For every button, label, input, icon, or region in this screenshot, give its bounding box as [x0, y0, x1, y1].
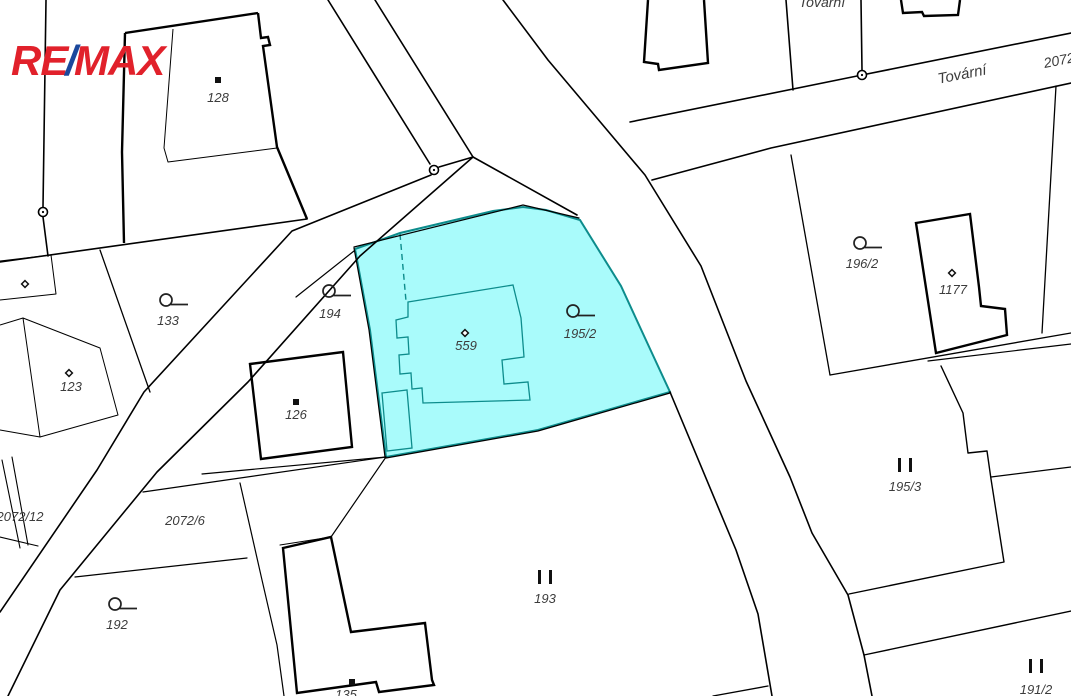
- map-symbol-double-bar: [1029, 659, 1043, 673]
- highlighted-parcel-group[interactable]: [355, 207, 670, 457]
- road-nw-edge2: [375, 0, 473, 157]
- boundary-above-tovarni: [786, 0, 793, 90]
- boundary-corridor: [240, 483, 284, 696]
- boundary-left-pair-a: [2, 460, 20, 548]
- parcel-topleft-quad: [0, 255, 56, 300]
- boundary-194-126: [296, 251, 354, 297]
- parcel-label-193: 193: [534, 591, 556, 606]
- boundary-123-bottom: [0, 430, 40, 437]
- highlighted-parcel-195-2[interactable]: [355, 207, 670, 457]
- building-135: [283, 537, 434, 693]
- map-canvas: 128133123194126559195/2196/21177195/3193…: [0, 0, 1071, 696]
- parcel-label-126: 126: [285, 407, 307, 422]
- remax-logo: RE/MAX: [11, 40, 164, 82]
- junction-point: [39, 208, 48, 217]
- road-tovarni-top: [630, 33, 1071, 122]
- parcel-123-edge: [0, 318, 23, 325]
- map-symbol-circle-tail: [854, 237, 882, 249]
- road-tovarni-bottom: [652, 83, 1071, 180]
- boundary-196-2-bottom-a: [830, 333, 1071, 375]
- parcel-label-128: 128: [207, 90, 229, 105]
- map-symbol-double-bar: [538, 570, 552, 584]
- cadastral-map-view: 128133123194126559195/2196/21177195/3193…: [0, 0, 1071, 696]
- parcel-label-Tov-rn-: Tovární: [936, 61, 990, 87]
- map-symbol-square: [215, 77, 221, 83]
- parcel-label-2072-12: 2072/12: [0, 509, 44, 524]
- boundary-196-2-bottom-b: [928, 344, 1071, 361]
- boundary-126-bottom: [202, 457, 386, 474]
- map-symbol-diamond: [66, 370, 73, 377]
- boundary-195-3: [849, 366, 1004, 594]
- boundary-191-2: [864, 611, 1071, 655]
- map-symbol-square: [293, 399, 299, 405]
- thin-parcel-lines: [0, 29, 277, 437]
- map-symbol-circle-tail: [160, 294, 188, 306]
- map-symbol-diamond: [22, 281, 29, 288]
- parcel-123-outline: [23, 318, 118, 437]
- road-nw-edge1: [328, 0, 430, 164]
- boundary-123-133: [100, 250, 150, 392]
- boundary-196-2-right: [1042, 86, 1056, 333]
- junction-point-layer: [39, 71, 867, 217]
- parcel-label-195-3: 195/3: [889, 479, 922, 494]
- remax-logo-max: MAX: [74, 37, 164, 84]
- building-top-b: [901, 0, 960, 16]
- map-symbol-double-bar: [898, 458, 912, 472]
- parcel-label-191-2: 191/2: [1020, 682, 1053, 696]
- parcel-label-133: 133: [157, 313, 179, 328]
- parcel-label-192: 192: [106, 617, 128, 632]
- boundary-cyan-to-135: [331, 457, 386, 537]
- remax-logo-re: RE: [11, 37, 67, 84]
- boundary-2072-6-top: [143, 457, 386, 492]
- parcel-label-2072-6: 2072/6: [164, 513, 206, 528]
- boundary-192-top: [75, 558, 247, 577]
- map-symbol-square: [349, 679, 355, 685]
- map-symbol-diamond: [949, 270, 956, 277]
- parcel-label-Tov-rn-: Tovární: [799, 0, 847, 10]
- map-symbol-circle-tail: [323, 285, 351, 297]
- building-top-a: [644, 0, 708, 70]
- boundary-195-3-branch: [991, 467, 1071, 477]
- parcel-label-559: 559: [455, 338, 477, 353]
- building-126: [250, 352, 352, 459]
- map-symbol-circle-tail: [109, 598, 137, 610]
- boundary-left-pair-b: [12, 457, 28, 545]
- boundary-bottom-spur: [713, 686, 768, 696]
- parcel-label-123: 123: [60, 379, 82, 394]
- parcel-label-194: 194: [319, 306, 341, 321]
- boundary-vertical-861: [861, 0, 862, 70]
- parcel-label-135: 135: [335, 687, 357, 696]
- parcel-label-195-2: 195/2: [564, 326, 597, 341]
- junction-point: [430, 166, 439, 175]
- junction-point: [858, 71, 867, 80]
- parcel-label-1177: 1177: [939, 282, 968, 297]
- boundary-196-2-left: [791, 155, 830, 375]
- parcel-label-2072: 2072: [1041, 49, 1071, 71]
- parcel-label-196-2: 196/2: [846, 256, 879, 271]
